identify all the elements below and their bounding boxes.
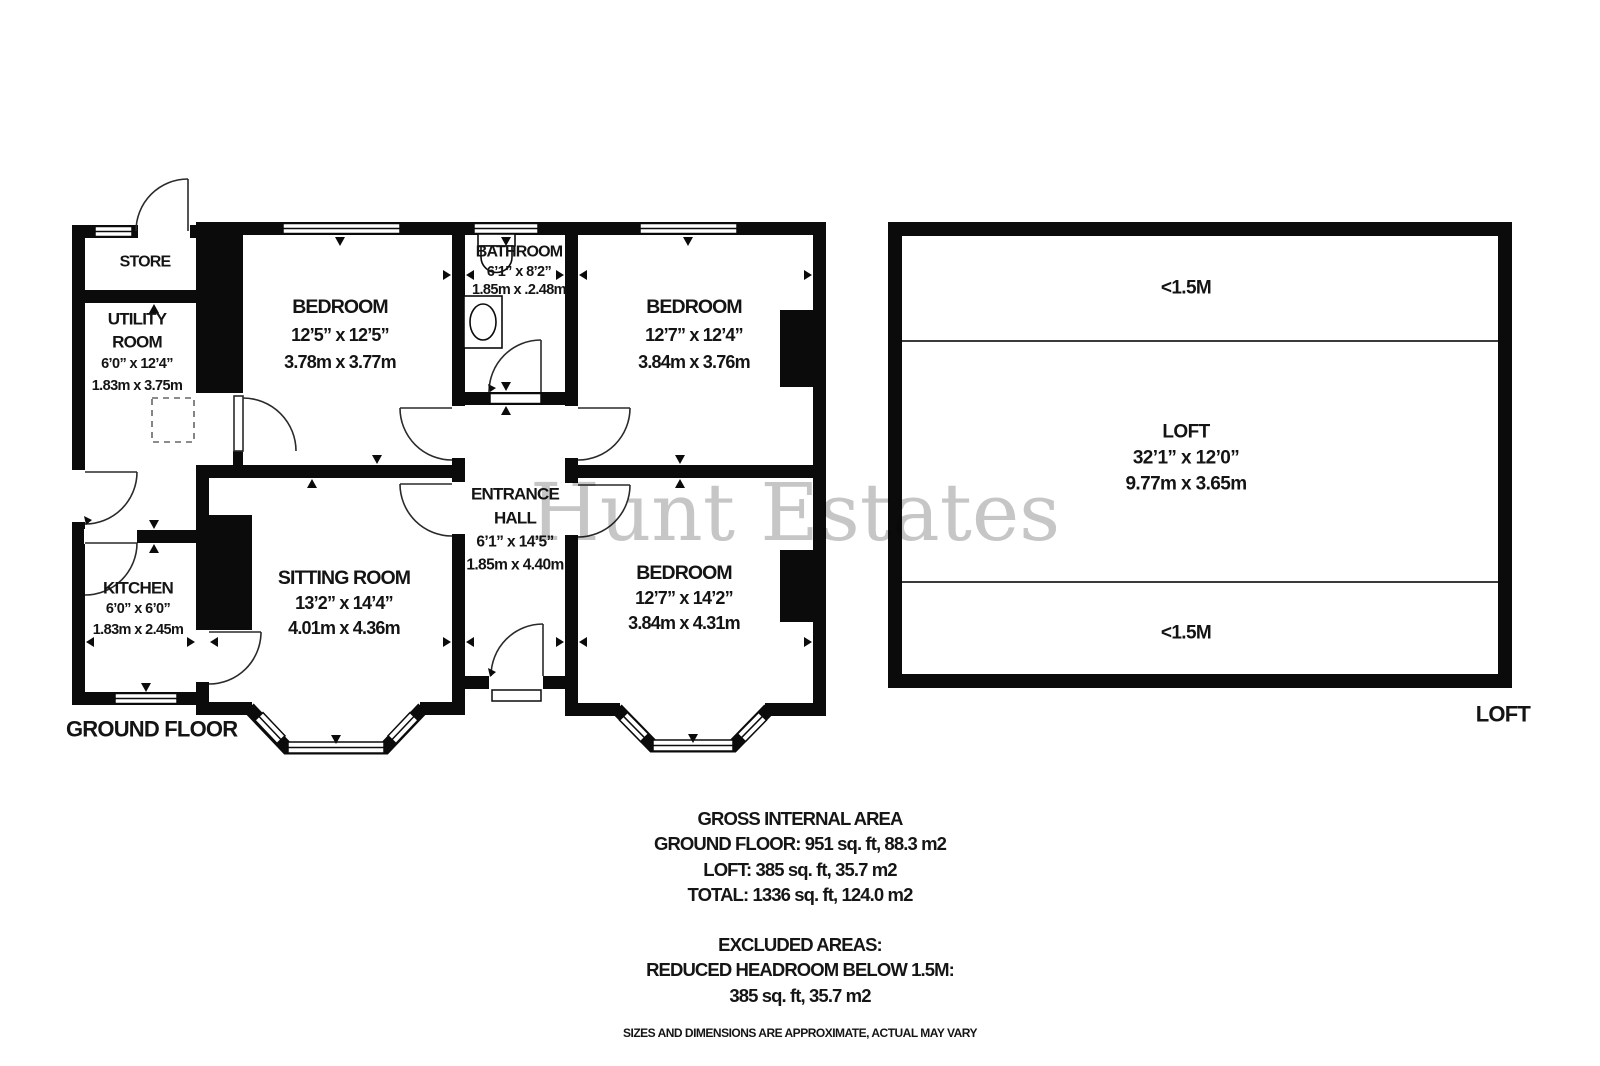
utility-bedroom-door <box>234 396 296 451</box>
bedroom-front-right-window <box>640 224 737 234</box>
gross-area-title: GROSS INTERNAL AREA <box>0 806 1600 831</box>
loft-headroom-bottom-label: <1.5M <box>1161 623 1211 644</box>
bedroom-rear-dims-imperial: 12’7” x 14’2” <box>635 588 733 608</box>
total-area: TOTAL: 1336 sq. ft, 124.0 m2 <box>0 882 1600 907</box>
excluded-areas-detail: REDUCED HEADROOM BELOW 1.5M: <box>0 957 1600 982</box>
kitchen-dims-metric: 1.83m x 2.45m <box>93 622 184 638</box>
bedroom-front-left-label: BEDROOM <box>292 296 388 318</box>
watermark: Hunt Estates <box>530 460 1050 565</box>
loft-dims-metric: 9.77m x 3.65m <box>1125 474 1246 495</box>
excluded-areas-value: 385 sq. ft, 35.7 m2 <box>0 983 1600 1008</box>
sitting-room-dims-metric: 4.01m x 4.36m <box>288 618 400 638</box>
hall-bedroom-front-left-door <box>400 408 452 460</box>
toilet <box>464 296 502 348</box>
loft-headroom-top-label: <1.5M <box>1161 278 1211 299</box>
hall-bedroom-front-right-door <box>578 408 630 460</box>
bathroom-dims-imperial: 6’1” x 8’2” <box>487 264 552 280</box>
floorplan-page: STORE UTILITY ROOM 6’0” x 12’4” 1.83m x … <box>0 0 1600 1066</box>
bedroom-front-left-dims-metric: 3.78m x 3.77m <box>284 352 396 372</box>
loft-floor-title: LOFT <box>1476 702 1532 727</box>
loft-area: LOFT: 385 sq. ft, 35.7 m2 <box>0 857 1600 882</box>
store-label: STORE <box>120 254 172 271</box>
bathroom-dims-metric: 1.85m x .2.48m <box>472 282 566 298</box>
kitchen-label: KITCHEN <box>103 579 173 598</box>
hall-sitting-door <box>400 484 452 536</box>
bedroom-front-right-dims-metric: 3.84m x 3.76m <box>638 352 750 372</box>
ground-floor-area: GROUND FLOOR: 951 sq. ft, 88.3 m2 <box>0 831 1600 856</box>
bedroom-front-right-label: BEDROOM <box>646 296 742 318</box>
bedroom-rear-label: BEDROOM <box>636 562 732 584</box>
excluded-areas-block: EXCLUDED AREAS: REDUCED HEADROOM BELOW 1… <box>0 932 1600 1008</box>
bathroom-door-step <box>490 394 541 404</box>
utility-dims-imperial: 6’0” x 12’4” <box>101 356 173 372</box>
store-window <box>95 227 132 237</box>
bedroom-front-right-dims-imperial: 12’7” x 12’4” <box>645 325 743 345</box>
sitting-bay-window-right <box>388 713 418 744</box>
loft-room-label: LOFT <box>1162 422 1210 443</box>
gross-internal-area-block: GROSS INTERNAL AREA GROUND FLOOR: 951 sq… <box>0 806 1600 908</box>
kitchen-window <box>115 694 177 704</box>
disclaimer-text: SIZES AND DIMENSIONS ARE APPROXIMATE, AC… <box>0 1026 1600 1040</box>
bathroom-window <box>474 224 538 234</box>
utility-dims-metric: 1.83m x 3.75m <box>92 378 183 394</box>
front-door-step <box>492 690 541 701</box>
store-door <box>136 179 188 231</box>
bedroom-front-left-dims-imperial: 12’5” x 12’5” <box>291 325 389 345</box>
ground-floor-title: GROUND FLOOR <box>66 717 238 742</box>
loft-dims-imperial: 32’1” x 12’0” <box>1133 448 1239 469</box>
bedroom-front-left-window <box>283 224 400 234</box>
utility-label-line1: UTILITY <box>108 310 168 329</box>
bedroom-rear-bay-window-right <box>738 712 767 741</box>
utility-exterior-door <box>85 472 137 524</box>
sitting-room-label: SITTING ROOM <box>278 567 410 589</box>
utility-label-line2: ROOM <box>112 333 162 352</box>
bedroom-rear-dims-metric: 3.84m x 4.31m <box>628 613 740 633</box>
excluded-areas-title: EXCLUDED AREAS: <box>0 932 1600 957</box>
bedroom-rear-bay-window-left <box>620 712 649 741</box>
utility-appliance-dashed <box>152 398 194 442</box>
kitchen-dims-imperial: 6’0” x 6’0” <box>106 601 171 617</box>
bathroom-label: BATHROOM <box>476 244 563 261</box>
sitting-room-dims-imperial: 13’2” x 14’4” <box>295 593 393 613</box>
front-door <box>491 624 543 676</box>
